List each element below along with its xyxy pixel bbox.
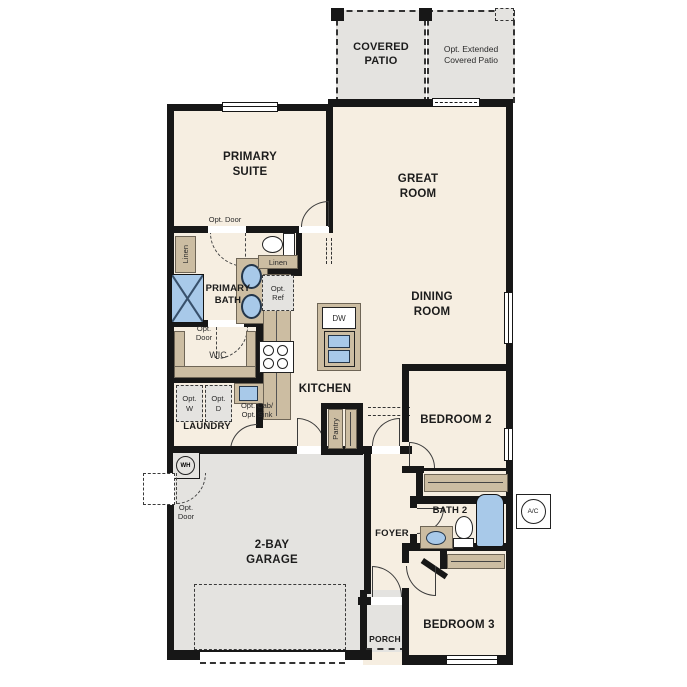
bedroom2-window	[504, 428, 513, 461]
patio-sliding-door	[432, 98, 480, 107]
wall-bedroom3-west-stub	[402, 543, 409, 563]
burner-3	[263, 358, 274, 369]
linen-bath-label: Linen	[181, 245, 190, 263]
kitchen-label: KITCHEN	[286, 382, 364, 397]
island-sink-basin-1	[328, 335, 350, 348]
wic-label: WIC	[200, 350, 236, 362]
opt-dryer-label: Opt. D	[211, 394, 225, 413]
wall-bedroom2-north	[402, 364, 513, 371]
foyer-hall-opening	[372, 446, 400, 454]
closet3-divider	[440, 551, 447, 569]
bedroom2-label: BEDROOM 2	[408, 413, 504, 428]
bedroom2-closet-shelf	[424, 474, 508, 492]
garage-opt-door-stoop	[143, 473, 175, 505]
wall-top-great-room	[328, 99, 513, 107]
island-sink-basin-2	[328, 350, 350, 363]
bedroom2-closet-track	[424, 468, 508, 471]
covered-patio-label: COVERED PATIO	[338, 40, 424, 69]
dishwasher-label: DW	[332, 314, 345, 323]
pantry-cabinet: Pantry	[328, 409, 343, 449]
bath2-tub	[476, 494, 504, 547]
bath2-sink	[426, 531, 446, 545]
garage-door-opening	[200, 650, 345, 660]
laundry-opt-sink	[239, 386, 258, 401]
ac-unit-label: A/C	[528, 508, 539, 515]
burner-1	[263, 345, 274, 356]
linen-cabinet-hall: Linen	[258, 255, 298, 269]
great-room-label: GREAT ROOM	[370, 172, 466, 202]
opt-door-wic-label: Opt. Door	[188, 324, 220, 343]
wall-garage-east	[364, 446, 371, 594]
opt-ref-box: Opt. Ref	[262, 275, 294, 311]
extended-patio-label: Opt. Extended Covered Patio	[430, 44, 512, 66]
ac-unit-box: A/C	[516, 494, 551, 529]
dining-window	[504, 292, 513, 344]
range-cooktop	[259, 341, 294, 373]
wall-right	[506, 99, 513, 665]
wic-shelf-bottom	[174, 366, 256, 378]
garage-door-zone	[194, 584, 346, 650]
burner-2	[277, 345, 288, 356]
patio-notch	[495, 8, 514, 21]
bedroom3-window	[446, 655, 498, 665]
island-sink	[324, 331, 355, 367]
primary-door-opening	[299, 226, 329, 233]
opt-washer-box: Opt. W	[176, 385, 203, 422]
water-heater-label: WH	[181, 463, 191, 469]
burner-4	[277, 358, 288, 369]
opt-cab-sink-label: Opt. Cab/ Opt. Sink	[226, 401, 288, 420]
linen-hall-label: Linen	[269, 258, 287, 267]
patio-post-right	[419, 8, 432, 21]
wall-bedroom2-west	[402, 364, 409, 442]
great-room-opt-opening	[326, 238, 332, 264]
primary-suite-window	[222, 102, 278, 112]
patio-post-left	[331, 8, 344, 21]
primary-suite-label: PRIMARY SUITE	[192, 150, 308, 180]
dining-room-label: DINING ROOM	[384, 290, 480, 320]
foyer-label: FOYER	[364, 528, 420, 540]
ac-unit-circle: A/C	[521, 499, 546, 524]
front-door-opening	[371, 597, 403, 605]
primary-bath-label: PRIMARY BATH	[198, 283, 258, 308]
bath2-toilet-bowl	[455, 516, 473, 539]
wall-bedroom3-west	[402, 588, 409, 660]
garage-label: 2-BAY GARAGE	[224, 538, 320, 568]
primary-toilet-bowl	[262, 236, 283, 253]
bedroom3-closet-shelf	[447, 554, 505, 569]
primary-toilet-tank	[283, 233, 295, 256]
bath2-toilet-tank	[453, 538, 474, 548]
pantry-label: Pantry	[331, 418, 340, 440]
porch-dashed-edge	[366, 648, 406, 650]
bedroom3-label: BEDROOM 3	[410, 618, 508, 633]
opt-ref-label: Opt. Ref	[271, 284, 285, 303]
garage-door-dashed-line	[200, 662, 345, 664]
opt-door-suite-label: Opt. Door	[198, 215, 252, 225]
opt-washer-label: Opt. W	[182, 394, 196, 413]
linen-cabinet-bath: Linen	[175, 236, 196, 273]
floor-plan: Pantry Linen Linen Opt. W Opt. D	[0, 0, 687, 687]
opt-door-garage-label: Opt. Door	[170, 503, 202, 522]
coat-closet-shelf	[345, 409, 357, 449]
sliding-door-track	[435, 102, 477, 103]
pantry-wall-left	[321, 403, 327, 455]
dishwasher-box: DW	[322, 307, 356, 329]
porch-label: PORCH	[364, 634, 406, 645]
laundry-label: LAUNDRY	[172, 421, 242, 433]
bath2-label: BATH 2	[424, 505, 476, 517]
primary-opt-door-opening	[208, 226, 246, 233]
pantry-wall-right	[357, 403, 363, 455]
